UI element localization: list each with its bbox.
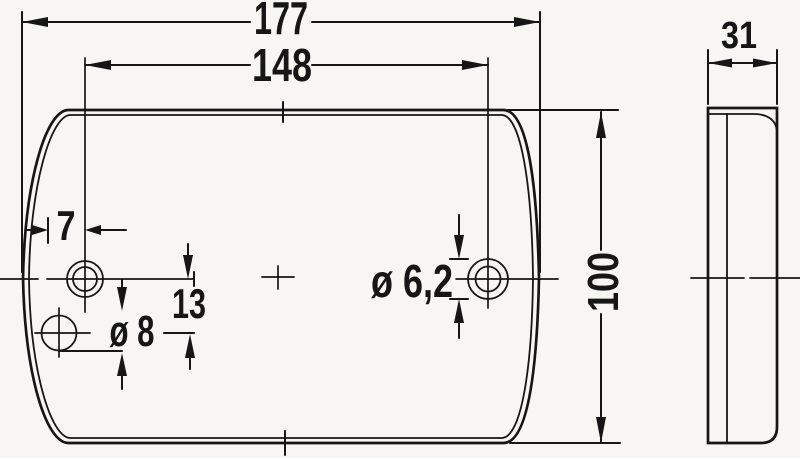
dim-label-13: 13 (172, 280, 206, 327)
front-view (0, 58, 558, 455)
arrowhead-down (183, 255, 193, 279)
side-view (691, 108, 800, 443)
dim-label-177: 177 (254, 0, 308, 44)
arrowhead-right (753, 59, 777, 68)
arrowhead-up (454, 299, 464, 323)
dim-label-31: 31 (721, 15, 757, 57)
right-hole (456, 58, 558, 308)
dim-label-7: 7 (57, 202, 76, 249)
dim-label-dia-6-2: ø 6,2 (371, 255, 453, 307)
technical-drawing-canvas: 177 148 7 13 ø 8 ø 6,2 (0, 0, 800, 458)
dimension-hole-offset: 13 (164, 244, 206, 369)
dimension-edge-to-hole: 7 (26, 202, 126, 249)
arrowhead-left (85, 60, 111, 70)
arrowhead-left (708, 59, 732, 68)
side-lens-seam (708, 114, 777, 133)
dim-label-dia-8: ø 8 (110, 307, 155, 356)
arrowhead-down (596, 417, 606, 443)
dimension-lower-hole-diameter: ø 8 (59, 280, 155, 389)
arrowhead-right (514, 17, 540, 27)
dimension-overall-height: 100 (508, 110, 628, 443)
dim-label-100: 100 (579, 252, 628, 312)
arrowhead-left (22, 17, 48, 27)
arrowhead-right (462, 60, 488, 70)
arrowhead-up (185, 334, 195, 358)
arrowhead-up (117, 353, 127, 376)
arrowhead-down (454, 235, 464, 259)
arrowhead-right-pointing (32, 225, 48, 235)
dimension-right-hole-diameter: ø 6,2 (371, 215, 468, 338)
lower-left-hole (35, 308, 90, 357)
arrowhead-up (596, 112, 606, 138)
dimension-hole-spacing: 148 (85, 39, 488, 91)
arrowhead-left-pointing (85, 225, 101, 235)
dimension-depth: 31 (708, 15, 777, 104)
center-cross (262, 266, 294, 289)
dim-label-148: 148 (252, 39, 312, 91)
side-outer-contour (708, 108, 777, 443)
